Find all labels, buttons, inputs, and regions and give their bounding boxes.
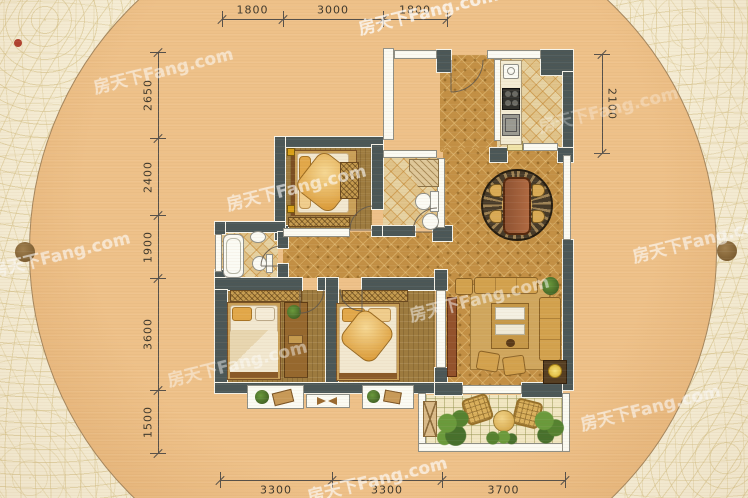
- entry-door-arc: [451, 60, 483, 92]
- bedroom-2-door-arc: [300, 289, 324, 313]
- bathroom-2-door-arc: [261, 246, 281, 266]
- dim-label-bottom-0: 3300: [260, 484, 292, 497]
- dim-label-top-1: 3000: [317, 4, 349, 17]
- dim-label-bottom-2: 3700: [488, 484, 520, 497]
- dim-line-left: [158, 52, 159, 453]
- bedroom-1-door-arc: [350, 206, 374, 230]
- dim-label-left-3: 3600: [142, 318, 155, 350]
- dim-label-left-2: 1900: [142, 231, 155, 263]
- dim-label-top-0: 1800: [237, 4, 269, 17]
- floor-plan-image: 1800300018003300330037002650240019003600…: [0, 0, 748, 498]
- bedroom-3-door-arc: [340, 289, 362, 311]
- bathroom-1-door-arc: [413, 208, 437, 232]
- dim-label-left-4: 1500: [142, 406, 155, 438]
- dim-label-left-1: 2400: [142, 161, 155, 193]
